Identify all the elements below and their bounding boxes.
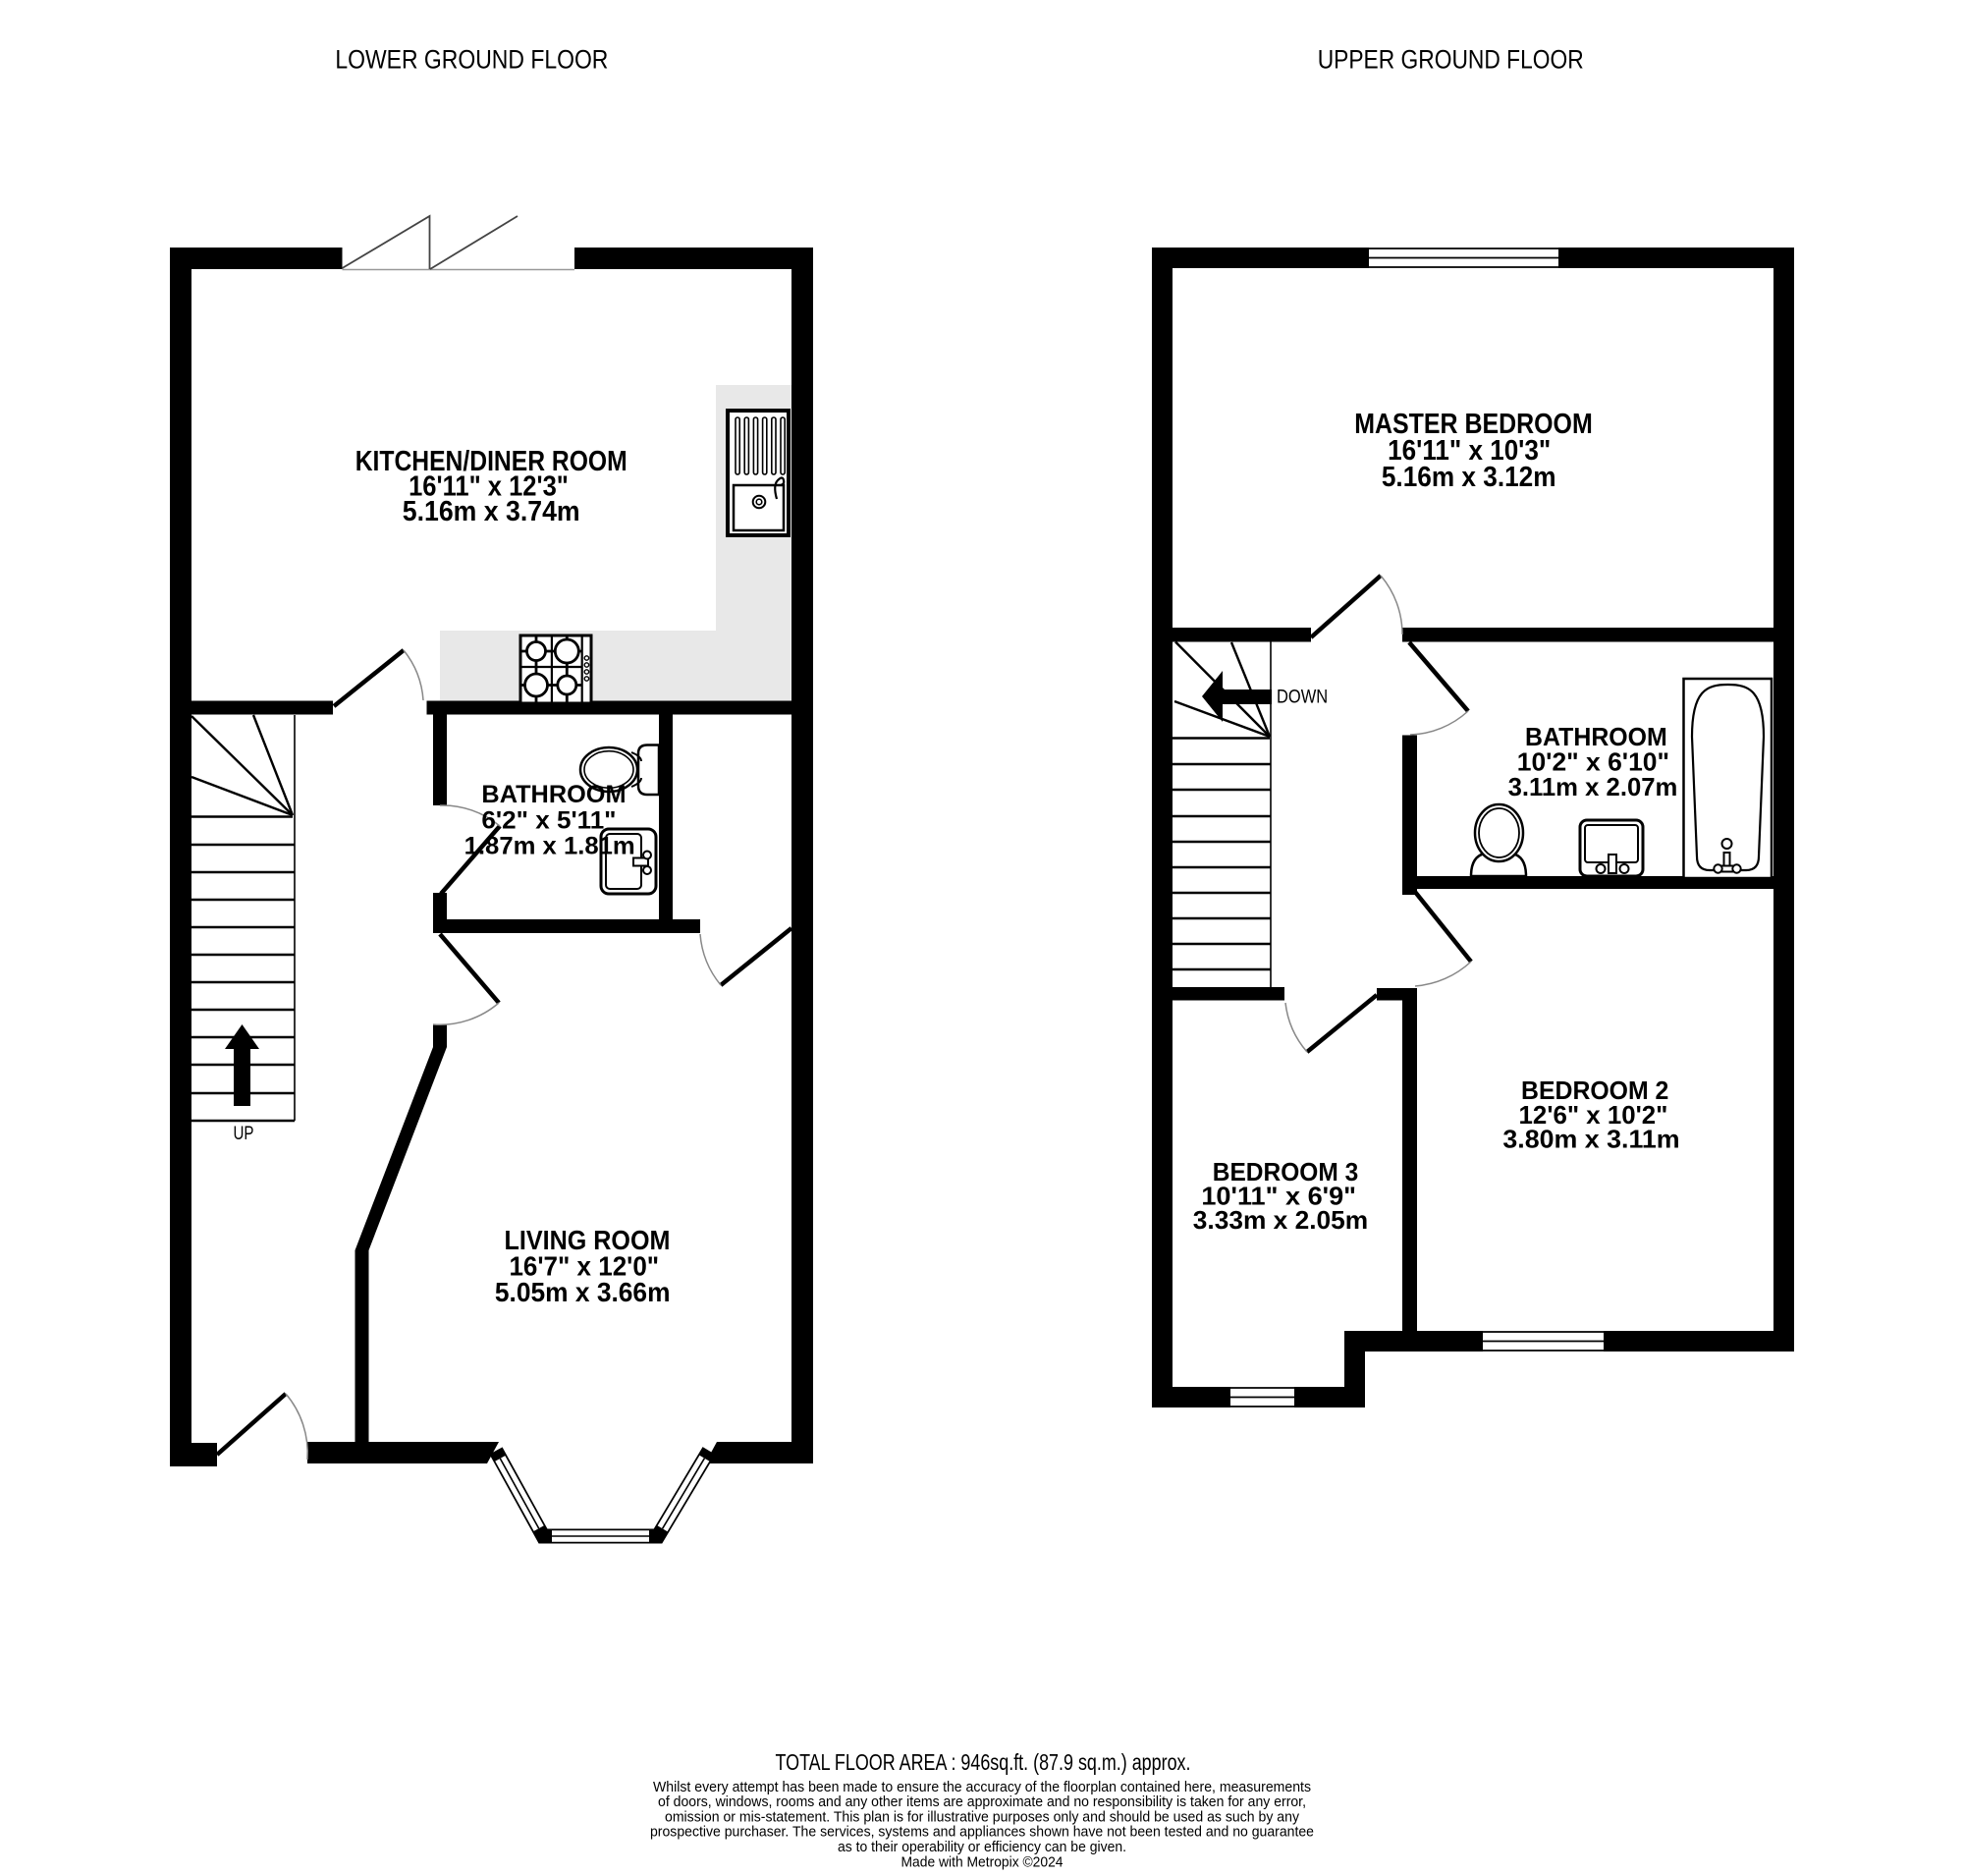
svg-text:DOWN: DOWN [1277, 688, 1328, 708]
svg-text:Made with Metropix ©2024: Made with Metropix ©2024 [901, 1853, 1064, 1870]
svg-text:6'2" x 5'11": 6'2" x 5'11" [481, 807, 616, 835]
svg-text:3.80m x 3.11m: 3.80m x 3.11m [1502, 1125, 1679, 1154]
svg-text:5.05m x 3.66m: 5.05m x 3.66m [495, 1277, 671, 1307]
svg-text:5.16m x 3.74m: 5.16m x 3.74m [403, 496, 580, 527]
svg-text:3.11m x 2.07m: 3.11m x 2.07m [1508, 772, 1678, 801]
svg-text:TOTAL FLOOR AREA : 946sq.ft. (: TOTAL FLOOR AREA : 946sq.ft. (87.9 sq.m.… [776, 1749, 1191, 1775]
svg-text:UP: UP [234, 1124, 254, 1144]
svg-text:BATHROOM: BATHROOM [481, 781, 626, 808]
svg-text:UPPER GROUND FLOOR: UPPER GROUND FLOOR [1318, 44, 1584, 74]
svg-text:5.16m x 3.12m: 5.16m x 3.12m [1382, 462, 1556, 493]
svg-text:LOWER GROUND FLOOR: LOWER GROUND FLOOR [335, 44, 608, 74]
svg-text:3.33m x 2.05m: 3.33m x 2.05m [1193, 1205, 1368, 1235]
svg-text:1.87m x 1.81m: 1.87m x 1.81m [464, 833, 635, 860]
